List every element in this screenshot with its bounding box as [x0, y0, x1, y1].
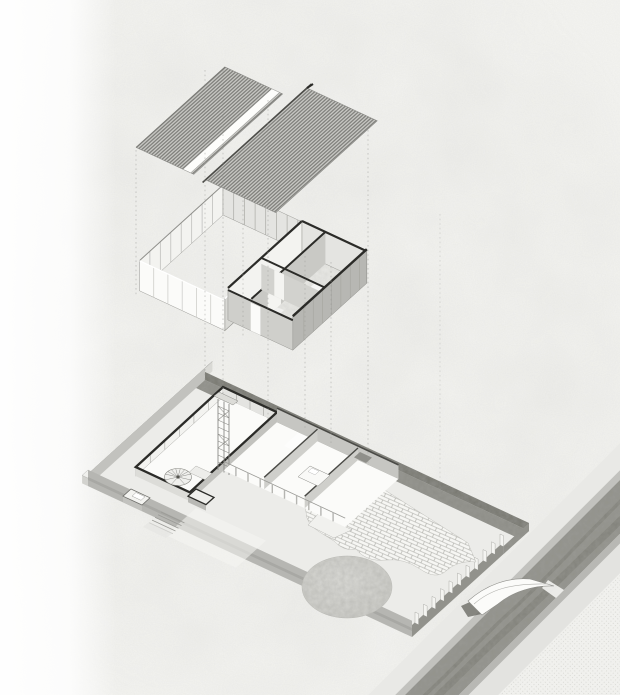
circular-lawn: [302, 556, 392, 618]
spiral-stair: [165, 469, 192, 486]
partition-2-doorway: [274, 270, 284, 301]
spiral-stair-newel: [176, 475, 179, 478]
wall-sw-doorway: [251, 303, 261, 336]
drawing-sheet: Exploded axonometric drawing of a courty…: [0, 0, 620, 695]
paper-left-margin: [0, 0, 116, 695]
exploded-axonometric-drawing: [0, 0, 620, 695]
